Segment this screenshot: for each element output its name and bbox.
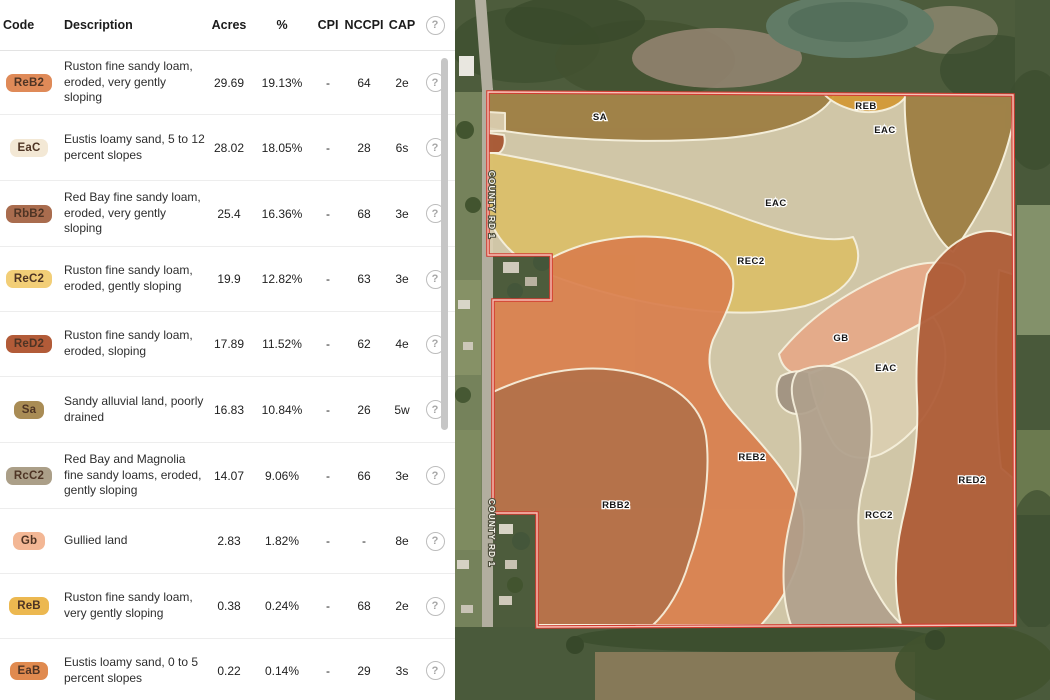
column-header-cpi: CPI [312,18,344,32]
soil-survey-app: CodeDescriptionAcres%CPINCCPICAP? ReB2Ru… [0,0,1050,700]
soil-table-row[interactable]: ReBRuston fine sandy loam, very gently s… [0,574,455,639]
zone-label-rec2: REC2 [737,256,764,267]
soil-table-row[interactable]: ReD2Ruston fine sandy loam, eroded, slop… [0,312,455,377]
soil-code-badge: Sa [14,401,44,419]
percent-value: 0.14% [252,664,312,678]
cpi-value: - [312,534,344,548]
zone-label-red2: RED2 [958,475,985,486]
nccpi-value: 66 [344,469,384,483]
help-icon[interactable]: ? [426,16,445,35]
acres-value: 17.89 [206,337,252,351]
soil-table-row[interactable]: SaSandy alluvial land, poorly drained16.… [0,377,455,443]
house [499,524,513,534]
soil-table-row[interactable]: RcC2Red Bay and Magnolia fine sandy loam… [0,443,455,509]
cap-value: 3e [384,207,420,221]
column-header-pct: % [252,18,312,32]
cap-value: 5w [384,403,420,417]
percent-value: 9.06% [252,469,312,483]
column-header-code: Code [0,18,58,32]
nccpi-value: 29 [344,664,384,678]
table-scrollbar[interactable] [441,58,448,430]
acres-value: 0.38 [206,599,252,613]
nccpi-value: 68 [344,207,384,221]
help-icon[interactable]: ? [426,597,445,616]
soil-code-badge: RbB2 [6,205,53,223]
parcel-map[interactable]: SAREBEACEACREC2GBEACREB2RBB2RCC2RED2 COU… [455,0,1050,700]
cpi-value: - [312,469,344,483]
column-header-acres: Acres [206,18,252,32]
cap-value: 6s [384,141,420,155]
zone-label-rcc2: RCC2 [865,510,893,521]
column-header-nccpi: NCCPI [344,18,384,32]
acres-value: 16.83 [206,403,252,417]
percent-value: 12.82% [252,272,312,286]
percent-value: 1.82% [252,534,312,548]
soil-code-badge: EaC [10,139,49,157]
cap-value: 3e [384,272,420,286]
soil-description: Ruston fine sandy loam, eroded, gently s… [64,263,206,294]
soil-description: Eustis loamy sand, 5 to 12 percent slope… [64,132,206,163]
percent-value: 0.24% [252,599,312,613]
cap-value: 4e [384,337,420,351]
cap-value: 8e [384,534,420,548]
cpi-value: - [312,272,344,286]
cpi-value: - [312,141,344,155]
map-canvas: SAREBEACEACREC2GBEACREB2RBB2RCC2RED2 COU… [455,0,1050,700]
percent-value: 16.36% [252,207,312,221]
acres-value: 19.9 [206,272,252,286]
soil-zone-eac-sliver [488,112,505,131]
acres-value: 25.4 [206,207,252,221]
road-label: COUNTY RD 1 [487,171,497,239]
nccpi-value: 28 [344,141,384,155]
acres-value: 28.02 [206,141,252,155]
column-header-description: Description [64,17,206,33]
percent-value: 10.84% [252,403,312,417]
dirt-field [595,652,915,700]
percent-value: 19.13% [252,76,312,90]
column-header-cap: CAP [384,18,420,32]
cpi-value: - [312,599,344,613]
soil-table-header: CodeDescriptionAcres%CPINCCPICAP? [0,0,455,51]
cap-value: 3s [384,664,420,678]
soil-table-panel: CodeDescriptionAcres%CPINCCPICAP? ReB2Ru… [0,0,455,700]
zone-label-rbb2: RBB2 [602,500,630,511]
soil-code-badge: ReB2 [6,74,52,92]
zone-label-gb: GB [833,333,848,344]
soil-description: Red Bay fine sandy loam, eroded, very ge… [64,190,206,237]
zone-label-eac: EAC [765,198,787,209]
soil-table-row[interactable]: EaCEustis loamy sand, 5 to 12 percent sl… [0,115,455,181]
zone-label-reb: REB [855,101,877,112]
zone-label-eac: EAC [874,125,896,136]
soil-code-badge: ReD2 [6,335,52,353]
soil-code-badge: RcC2 [6,467,52,485]
soil-table-row[interactable]: RbB2Red Bay fine sandy loam, eroded, ver… [0,181,455,247]
zone-label-sa: SA [593,112,607,123]
soil-zone-eab [488,133,505,153]
soil-description: Ruston fine sandy loam, eroded, very gen… [64,59,206,106]
cap-value: 2e [384,76,420,90]
soil-table-row[interactable]: ReB2Ruston fine sandy loam, eroded, very… [0,51,455,115]
soil-code-badge: ReC2 [6,270,52,288]
percent-value: 11.52% [252,337,312,351]
road-label: COUNTY RD 1 [487,499,497,567]
zone-label-reb2: REB2 [738,452,765,463]
soil-description: Sandy alluvial land, poorly drained [64,394,206,425]
cap-value: 3e [384,469,420,483]
nccpi-value: 62 [344,337,384,351]
soil-table-row[interactable]: EaBEustis loamy sand, 0 to 5 percent slo… [0,639,455,700]
soil-description: Ruston fine sandy loam, eroded, sloping [64,328,206,359]
help-icon[interactable]: ? [426,532,445,551]
acres-value: 14.07 [206,469,252,483]
acres-value: 0.22 [206,664,252,678]
soil-code-badge: ReB [9,597,49,615]
soil-code-badge: EaB [10,662,49,680]
help-icon[interactable]: ? [426,661,445,680]
cpi-value: - [312,207,344,221]
nccpi-value: 64 [344,76,384,90]
cap-value: 2e [384,599,420,613]
soil-table-row[interactable]: GbGullied land2.831.82%--8e? [0,509,455,574]
cpi-value: - [312,76,344,90]
soil-code-badge: Gb [13,532,45,550]
cpi-value: - [312,337,344,351]
cpi-value: - [312,664,344,678]
nccpi-value: - [344,534,384,548]
cpi-value: - [312,403,344,417]
soil-description: Gullied land [64,533,206,549]
soil-table-row[interactable]: ReC2Ruston fine sandy loam, eroded, gent… [0,247,455,312]
soil-zones [455,0,1050,700]
help-icon[interactable]: ? [426,466,445,485]
percent-value: 18.05% [252,141,312,155]
acres-value: 2.83 [206,534,252,548]
soil-description: Red Bay and Magnolia fine sandy loams, e… [64,452,206,499]
zone-label-eac: EAC [875,363,897,374]
nccpi-value: 26 [344,403,384,417]
nccpi-value: 68 [344,599,384,613]
soil-description: Ruston fine sandy loam, very gently slop… [64,590,206,621]
soil-table-body: ReB2Ruston fine sandy loam, eroded, very… [0,51,455,700]
nccpi-value: 63 [344,272,384,286]
acres-value: 29.69 [206,76,252,90]
soil-description: Eustis loamy sand, 0 to 5 percent slopes [64,655,206,686]
building [459,56,474,76]
house [503,262,519,273]
